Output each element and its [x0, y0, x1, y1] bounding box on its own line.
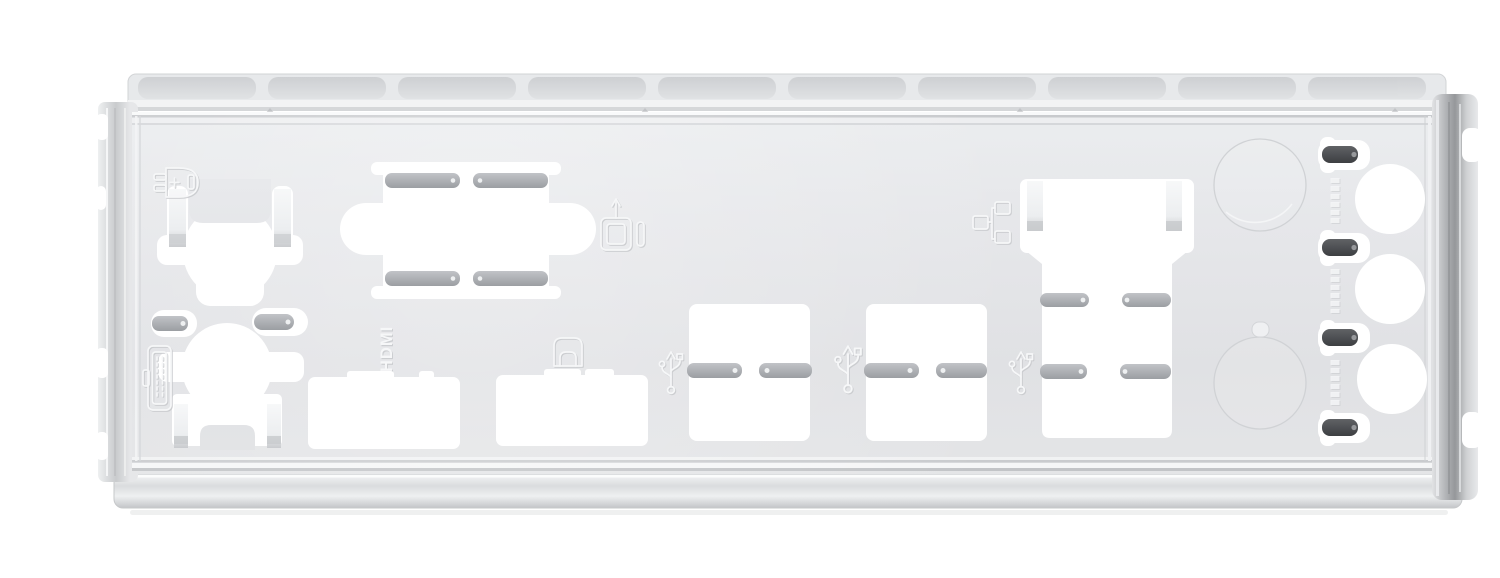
- usb-stack-cutout-1: [687, 304, 812, 441]
- knockout-tab: [1252, 322, 1269, 337]
- knockout-circle-bottom: [1214, 337, 1306, 429]
- audio-slot-1: [1318, 137, 1370, 173]
- right-flange: [1432, 94, 1482, 500]
- audio-jack-1: [1355, 164, 1425, 234]
- io-shield-photo: Silver motherboard rear I/O shield backp…: [40, 16, 1500, 562]
- top-flange: [128, 74, 1446, 114]
- left-flange: [96, 102, 138, 482]
- knockout-circle-top: [1214, 139, 1306, 231]
- audio-slot-2: [1318, 230, 1370, 266]
- audio-jack-2: [1355, 254, 1425, 324]
- hdmi-label-text: HDMI: [378, 326, 396, 372]
- audio-jack-3: [1357, 344, 1427, 414]
- hdmi-label: HDMI HDMI: [378, 326, 397, 373]
- displayport-cutout: [496, 369, 648, 446]
- audio-slot-4: [1318, 410, 1370, 446]
- usb-stack-cutout-2: [864, 304, 987, 441]
- audio-slot-3: [1318, 320, 1370, 356]
- lan-usb-stack-cutout: [1020, 179, 1194, 438]
- hdmi-cutout: [308, 371, 460, 449]
- bottom-flange: [114, 474, 1462, 515]
- io-shield: HDMI HDMI: [40, 16, 1500, 562]
